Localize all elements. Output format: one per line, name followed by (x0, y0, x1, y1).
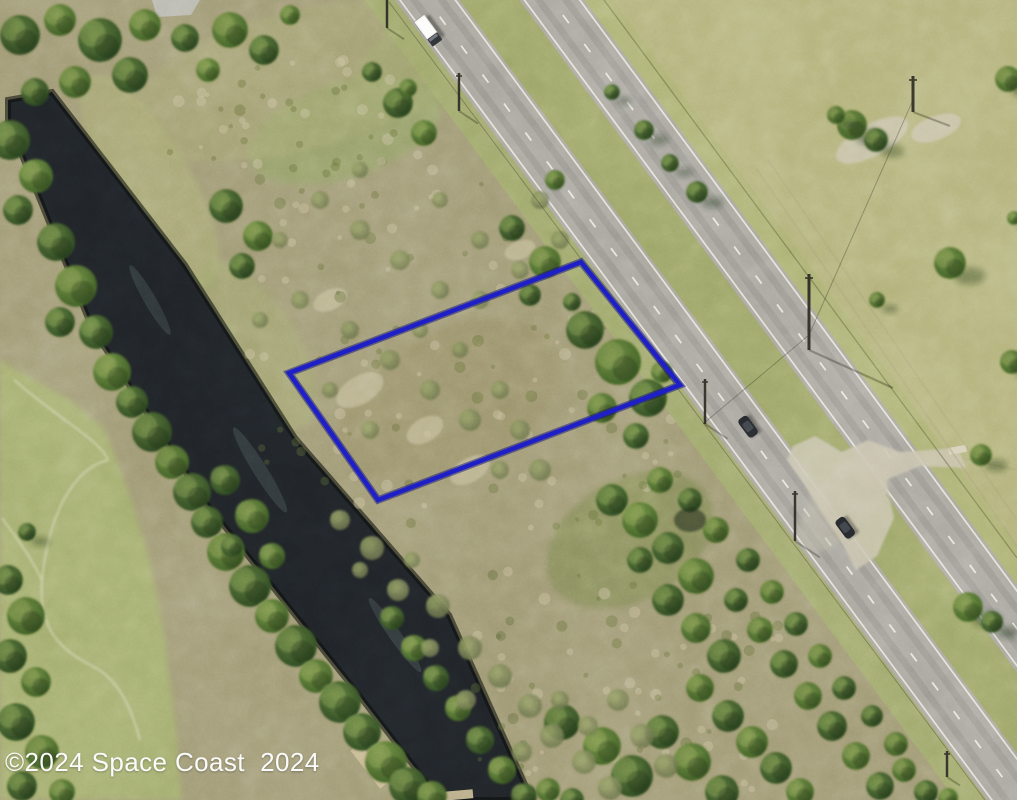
photo-grain (0, 0, 1017, 800)
watermark-text: ©2024 Space Coast 2024 (5, 747, 320, 778)
aerial-scene (0, 0, 1017, 800)
aerial-photo: ©2024 Space Coast 2024 (0, 0, 1017, 800)
